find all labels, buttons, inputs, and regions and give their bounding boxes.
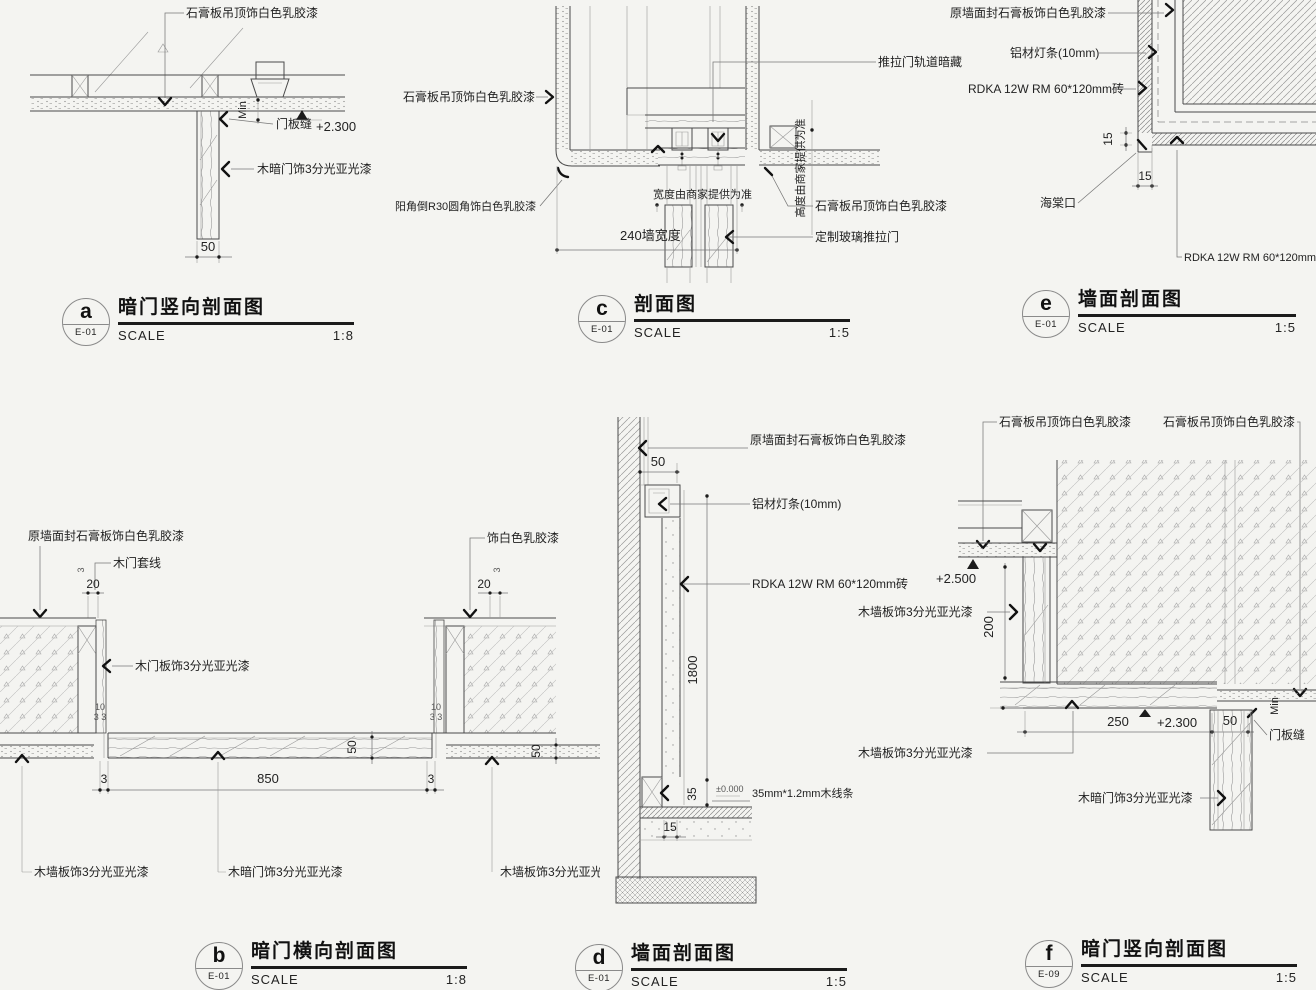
dim-20-right: 20	[477, 577, 491, 591]
sheet-code: E-01	[208, 969, 230, 985]
label-trim: 35mm*1.2mm木线条	[752, 786, 853, 800]
scale-value: 1:5	[826, 974, 847, 989]
sheet-code: E-01	[75, 325, 97, 341]
detail-letter: b	[196, 943, 242, 969]
scale-value: 1:8	[446, 972, 467, 987]
elevation-2500: +2.500	[936, 571, 976, 586]
label-corner-r30: 阳角倒R30圆角饰白色乳胶漆	[395, 199, 536, 213]
dim-1800: 1800	[685, 656, 700, 685]
label-hidden-door: 木暗门饰3分光亚光漆	[257, 161, 372, 176]
detail-title: 剖面图	[634, 293, 850, 322]
detail-bubble: d E-01	[575, 944, 623, 990]
sheet-code: E-01	[1035, 317, 1057, 333]
detail-title: 墙面剖面图	[1078, 288, 1296, 317]
label-ceiling-2: 石膏板吊顶饰白色乳胶漆	[1163, 414, 1295, 429]
dim-50-b: 50	[529, 744, 543, 758]
detail-bubble: f E-09	[1025, 940, 1073, 988]
sheet-code: E-09	[1038, 967, 1060, 983]
scale-label: SCALE	[1081, 970, 1129, 985]
label-tile: RDKA 12W RM 60*120mm砖	[968, 81, 1124, 96]
detail-title: 墙面剖面图	[631, 942, 847, 971]
titleblock-e: e E-01 墙面剖面图 SCALE 1:5	[1022, 288, 1296, 338]
label-ceiling: 石膏板吊顶饰白色乳胶漆	[186, 5, 318, 20]
label-door-seam: 门板缝	[1269, 727, 1305, 742]
dim-35: 35	[685, 787, 699, 801]
label-wall-left: 木墙板饰3分光亚光漆	[34, 865, 149, 879]
label-wall-seal: 原墙面封石膏板饰白色乳胶漆	[28, 528, 184, 543]
label-wall-seal: 原墙面封石膏板饰白色乳胶漆	[950, 5, 1106, 20]
label-glass-door: 定制玻璃推拉门	[815, 229, 899, 244]
dim-250: 250	[1107, 714, 1129, 729]
detail-bubble: a E-01	[62, 298, 110, 346]
detail-letter: e	[1023, 291, 1069, 317]
dim-15-horizontal: 15	[1138, 169, 1152, 183]
scale-label: SCALE	[251, 972, 299, 987]
label-light-strip: 铝材灯条(10mm)	[752, 496, 841, 511]
elevation-2300: +2.300	[1157, 715, 1197, 730]
dim-33-right: 3 3	[430, 712, 443, 722]
sheet-code: E-01	[588, 971, 610, 987]
detail-c-drawing: 石膏板吊顶饰白色乳胶漆 阳角倒R30圆角饰白色乳胶漆 宽度由商家提供为准 240…	[390, 0, 990, 285]
dim-33-left: 3 3	[94, 712, 107, 722]
detail-title: 暗门横向剖面图	[251, 940, 467, 969]
detail-f-drawing: 石膏板吊顶饰白色乳胶漆 石膏板吊顶饰白色乳胶漆 +2.500 200 木墙板饰3…	[850, 405, 1316, 935]
drawing-sheet: Min 门板缝 +2.300 木暗门饰3分光亚光漆 50 石膏板吊顶饰白色乳胶漆…	[0, 0, 1316, 990]
dim-min: Min	[1269, 697, 1281, 715]
detail-letter: d	[576, 945, 622, 971]
dim-3-b: 3	[428, 772, 435, 786]
dim-50: 50	[651, 454, 665, 469]
label-haitang: 海棠口	[1040, 195, 1076, 210]
dim-50-a: 50	[345, 740, 359, 754]
dim-3-left: 3	[76, 567, 86, 572]
label-light-strip: 铝材灯条(10mm)	[1010, 45, 1099, 60]
detail-letter: f	[1026, 941, 1072, 967]
label-ceiling-1: 石膏板吊顶饰白色乳胶漆	[999, 414, 1131, 429]
scale-label: SCALE	[631, 974, 679, 989]
detail-e-drawing: 原墙面封石膏板饰白色乳胶漆 铝材灯条(10mm) RDKA 12W RM 60*…	[940, 0, 1316, 290]
label-hidden-door: 木暗门饰3分光亚光漆	[1078, 790, 1193, 805]
dim-3-right: 3	[492, 567, 502, 572]
label-ceiling-left: 石膏板吊顶饰白色乳胶漆	[403, 89, 535, 104]
dim-10-right: 10	[431, 702, 441, 712]
detail-bubble: b E-01	[195, 942, 243, 990]
dim-850: 850	[257, 771, 279, 786]
titleblock-c: c E-01 剖面图 SCALE 1:5	[578, 293, 850, 343]
dim-240-wall: 240墙宽度	[620, 228, 681, 243]
detail-b-drawing: 原墙面封石膏板饰白色乳胶漆 木门套线 3 20 10 3 3 10 3 3 饰白…	[0, 420, 600, 930]
detail-title: 暗门竖向剖面图	[118, 296, 354, 325]
label-hidden-door: 木暗门饰3分光亚光漆	[228, 864, 343, 879]
detail-title: 暗门竖向剖面图	[1081, 938, 1297, 967]
note-height: 高度由商家提供为准	[793, 119, 807, 218]
detail-a-drawing: Min 门板缝 +2.300 木暗门饰3分光亚光漆 50 石膏板吊顶饰白色乳胶漆	[0, 0, 380, 290]
dim-15: 15	[663, 820, 677, 834]
label-wall-right: 木墙板饰3分光亚光漆	[500, 865, 600, 879]
scale-label: SCALE	[1078, 320, 1126, 335]
dim-15-vertical: 15	[1101, 132, 1115, 146]
dim-3-a: 3	[101, 772, 108, 786]
scale-label: SCALE	[118, 328, 166, 343]
label-paint: 饰白色乳胶漆	[487, 530, 559, 545]
elevation-0: ±0.000	[716, 784, 743, 794]
scale-value: 1:8	[333, 328, 354, 343]
label-tile-2: RDKA 12W RM 60*120mm砖	[1184, 250, 1316, 264]
label-door-panel: 木门板饰3分光亚光漆	[135, 658, 250, 673]
scale-value: 1:5	[1276, 970, 1297, 985]
dim-min: Min	[237, 101, 249, 119]
detail-letter: c	[579, 296, 625, 322]
titleblock-a: a E-01 暗门竖向剖面图 SCALE 1:8	[62, 296, 354, 346]
titleblock-f: f E-09 暗门竖向剖面图 SCALE 1:5	[1025, 938, 1297, 988]
elevation-2300: +2.300	[316, 119, 356, 134]
detail-bubble: c E-01	[578, 295, 626, 343]
dim-20-left: 20	[86, 577, 100, 591]
sheet-code: E-01	[591, 322, 613, 338]
scale-value: 1:5	[1275, 320, 1296, 335]
scale-label: SCALE	[634, 325, 682, 340]
titleblock-b: b E-01 暗门横向剖面图 SCALE 1:8	[195, 940, 467, 990]
dim-10-left: 10	[95, 702, 105, 712]
label-casing: 木门套线	[113, 555, 161, 570]
titleblock-d: d E-01 墙面剖面图 SCALE 1:5	[575, 942, 847, 990]
detail-letter: a	[63, 299, 109, 325]
dim-200: 200	[981, 616, 996, 638]
scale-value: 1:5	[829, 325, 850, 340]
detail-bubble: e E-01	[1022, 290, 1070, 338]
dim-50: 50	[201, 239, 215, 254]
label-ceiling-right: 石膏板吊顶饰白色乳胶漆	[815, 198, 947, 213]
label-wall-panel-2: 木墙板饰3分光亚光漆	[858, 746, 973, 760]
label-wall-panel-1: 木墙板饰3分光亚光漆	[858, 605, 973, 619]
